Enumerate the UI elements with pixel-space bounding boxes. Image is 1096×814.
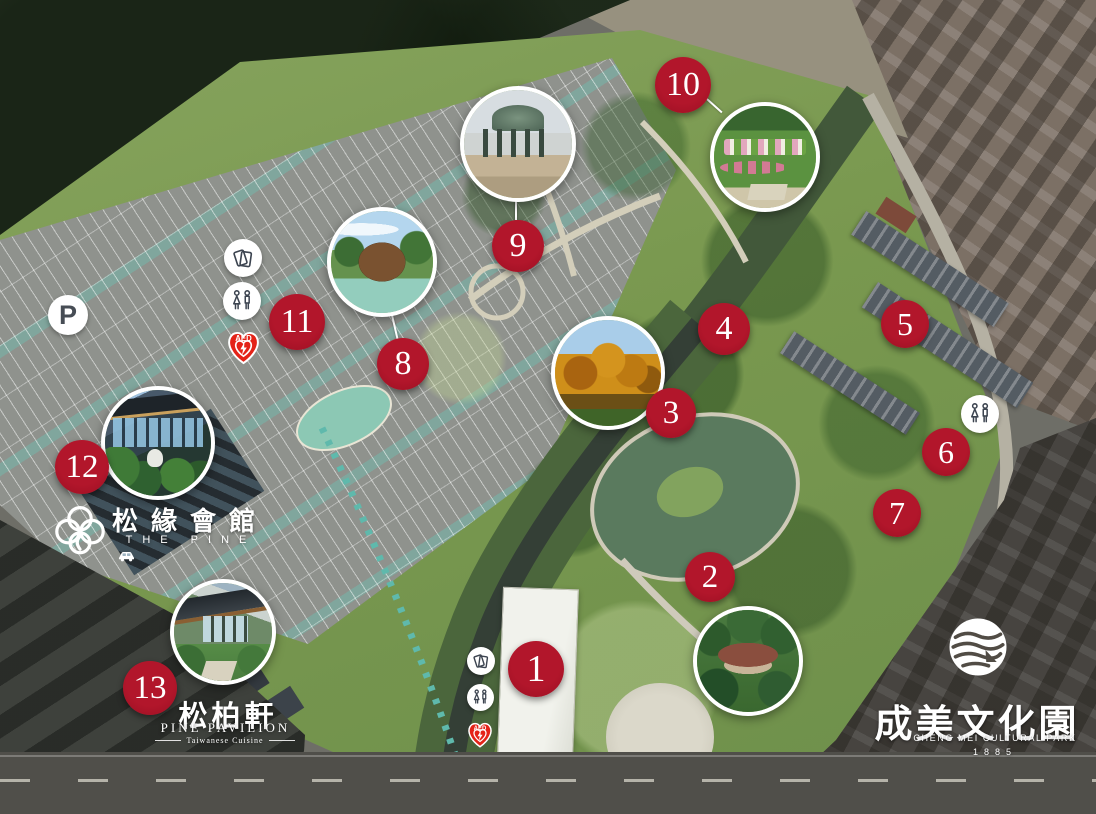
the-pine-name-en: THE PINE bbox=[116, 534, 266, 546]
cheng-mei-name-en: CHENG MEI CULTURAL PARK bbox=[900, 733, 1090, 743]
map-marker-10[interactable]: 10 bbox=[655, 57, 711, 113]
photo-inset-8[interactable] bbox=[327, 207, 437, 317]
pine-pavilion-name-en: PINE PAVILION bbox=[153, 720, 298, 736]
pine-flower-icon bbox=[48, 498, 112, 562]
ticket-glyph bbox=[230, 245, 256, 271]
photo-art bbox=[492, 105, 544, 131]
photo-art bbox=[697, 610, 799, 712]
aed-glyph: AED bbox=[465, 719, 495, 749]
map-marker-5[interactable]: 5 bbox=[881, 300, 929, 348]
aed-icon: AED bbox=[224, 327, 263, 366]
wave-circle-icon bbox=[948, 617, 1008, 677]
parking-letter: P bbox=[59, 300, 77, 331]
the-pine-logo bbox=[48, 498, 112, 562]
car-glyph bbox=[118, 551, 135, 562]
car-icon bbox=[118, 551, 135, 562]
park-map: 1 2 3 4 5 6 7 8 9 10 11 12 13 P AED bbox=[0, 0, 1096, 814]
photo-inset-10[interactable] bbox=[710, 102, 820, 212]
map-marker-12[interactable]: 12 bbox=[55, 440, 109, 494]
photo-inset-12[interactable] bbox=[101, 386, 215, 500]
restroom-glyph bbox=[229, 288, 255, 314]
map-marker-4[interactable]: 4 bbox=[698, 303, 750, 355]
ticket-icon bbox=[224, 239, 262, 277]
restroom-icon bbox=[961, 395, 999, 433]
photo-art bbox=[483, 129, 552, 157]
map-marker-11[interactable]: 11 bbox=[269, 294, 325, 350]
aed-icon: AED bbox=[465, 719, 495, 749]
aed-glyph: AED bbox=[224, 327, 263, 366]
map-marker-1[interactable]: 1 bbox=[508, 641, 564, 697]
leader-line bbox=[515, 201, 517, 220]
map-marker-6[interactable]: 6 bbox=[922, 428, 970, 476]
map-marker-7[interactable]: 7 bbox=[873, 489, 921, 537]
photo-art bbox=[113, 418, 202, 448]
pine-pavilion-tagline: Taiwanese Cuisine bbox=[186, 736, 263, 745]
photo-inset-2[interactable] bbox=[693, 606, 803, 716]
cheng-mei-year: 1885 bbox=[900, 747, 1090, 757]
map-marker-8[interactable]: 8 bbox=[377, 338, 429, 390]
ticket-icon bbox=[467, 647, 495, 675]
map-marker-3[interactable]: 3 bbox=[646, 388, 696, 438]
restroom-glyph bbox=[471, 688, 490, 707]
restroom-icon bbox=[467, 684, 494, 711]
map-marker-9[interactable]: 9 bbox=[492, 220, 544, 272]
restroom-glyph bbox=[967, 401, 993, 427]
photo-art bbox=[724, 139, 806, 155]
map-marker-2[interactable]: 2 bbox=[685, 552, 735, 602]
photo-art bbox=[147, 449, 163, 467]
ticket-glyph bbox=[471, 651, 491, 671]
photo-art bbox=[331, 211, 433, 313]
stream-pond bbox=[287, 373, 400, 463]
road-lane-dashes bbox=[0, 779, 1096, 782]
photo-inset-13[interactable] bbox=[170, 579, 276, 685]
main-road bbox=[0, 752, 1096, 814]
photo-inset-9[interactable] bbox=[460, 86, 576, 202]
parking-icon: P bbox=[48, 295, 88, 335]
pine-pavilion-tagline-row: Taiwanese Cuisine bbox=[150, 736, 300, 745]
cheng-mei-logo bbox=[948, 617, 1008, 677]
photo-art bbox=[203, 616, 248, 641]
restroom-icon bbox=[223, 282, 261, 320]
tagline-rule bbox=[155, 740, 181, 741]
photo-art bbox=[747, 184, 787, 200]
the-pine-name-zh: 松緣會館 bbox=[112, 501, 262, 538]
tagline-rule bbox=[269, 740, 295, 741]
